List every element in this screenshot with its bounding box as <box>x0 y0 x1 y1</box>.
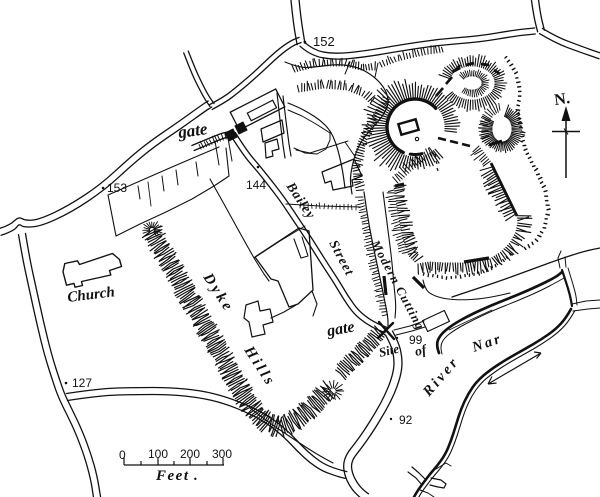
svg-text:144: 144 <box>246 178 266 192</box>
svg-text:92: 92 <box>399 413 413 427</box>
svg-text:200: 200 <box>180 447 200 461</box>
svg-text:127: 127 <box>72 376 92 390</box>
svg-text:152: 152 <box>313 34 335 49</box>
svg-text:Feet .: Feet . <box>155 468 199 484</box>
svg-text:N.: N. <box>553 90 571 109</box>
svg-text:153: 153 <box>107 181 127 195</box>
svg-text:100: 100 <box>148 447 168 461</box>
svg-text:0: 0 <box>119 448 126 462</box>
svg-text:300: 300 <box>212 447 232 461</box>
